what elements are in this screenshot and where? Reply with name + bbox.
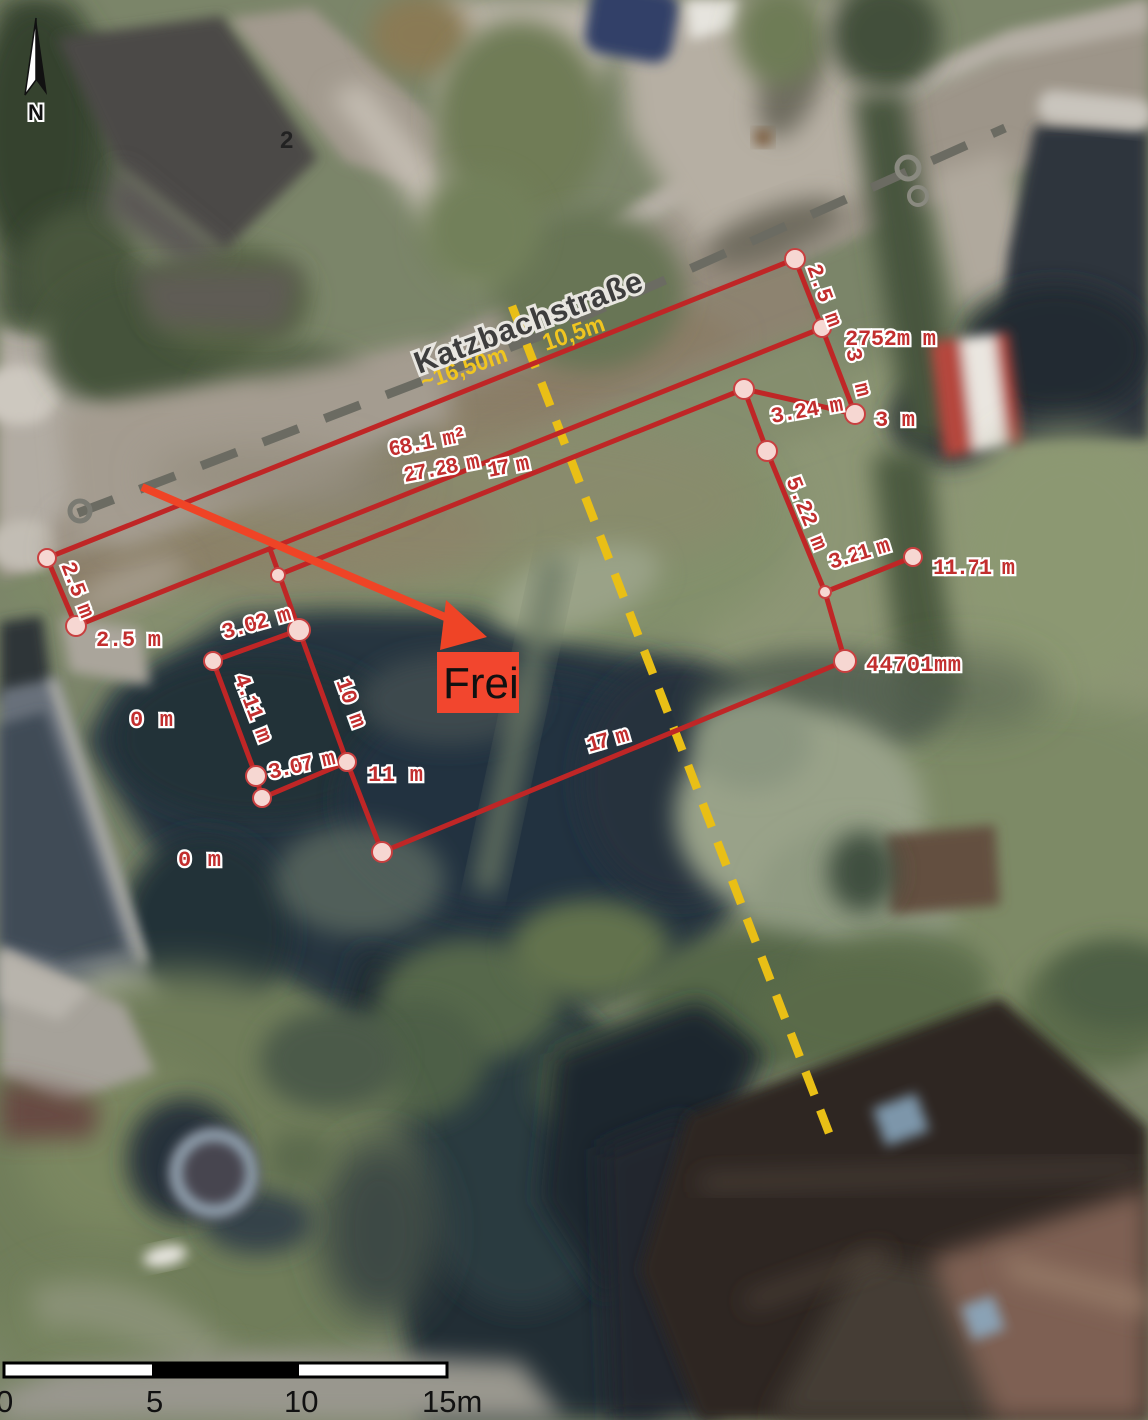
- svg-text:5: 5: [146, 1384, 163, 1419]
- svg-text:10: 10: [284, 1384, 318, 1419]
- svg-text:0: 0: [0, 1384, 13, 1419]
- svg-text:Frei: Frei: [443, 659, 519, 708]
- svg-text:11 m: 11 m: [368, 763, 423, 788]
- svg-text:11.71 m: 11.71 m: [933, 556, 1015, 581]
- svg-text:0 m: 0 m: [178, 848, 221, 873]
- svg-text:N: N: [28, 100, 44, 125]
- svg-text:2: 2: [280, 127, 293, 154]
- svg-text:0 m: 0 m: [130, 708, 173, 733]
- svg-text:2.5 m: 2.5 m: [96, 628, 161, 653]
- svg-text:15m: 15m: [422, 1384, 482, 1419]
- svg-text:3 m: 3 m: [875, 408, 915, 433]
